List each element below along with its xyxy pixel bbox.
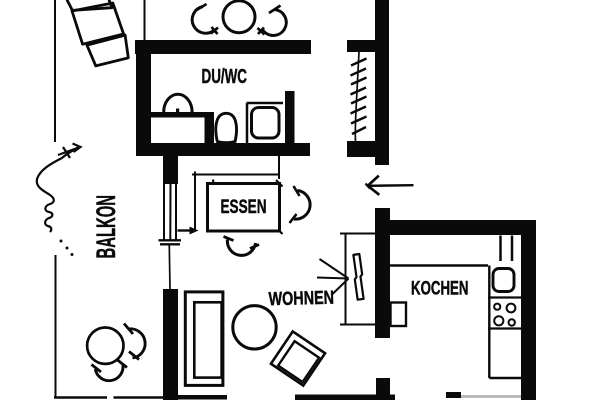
svg-text:DU/WC: DU/WC (202, 66, 248, 88)
svg-text:WOHNEN: WOHNEN (268, 288, 334, 311)
svg-text:ESSEN: ESSEN (221, 197, 267, 218)
svg-text:KOCHEN: KOCHEN (411, 278, 469, 300)
svg-text:BALKON: BALKON (91, 195, 121, 259)
